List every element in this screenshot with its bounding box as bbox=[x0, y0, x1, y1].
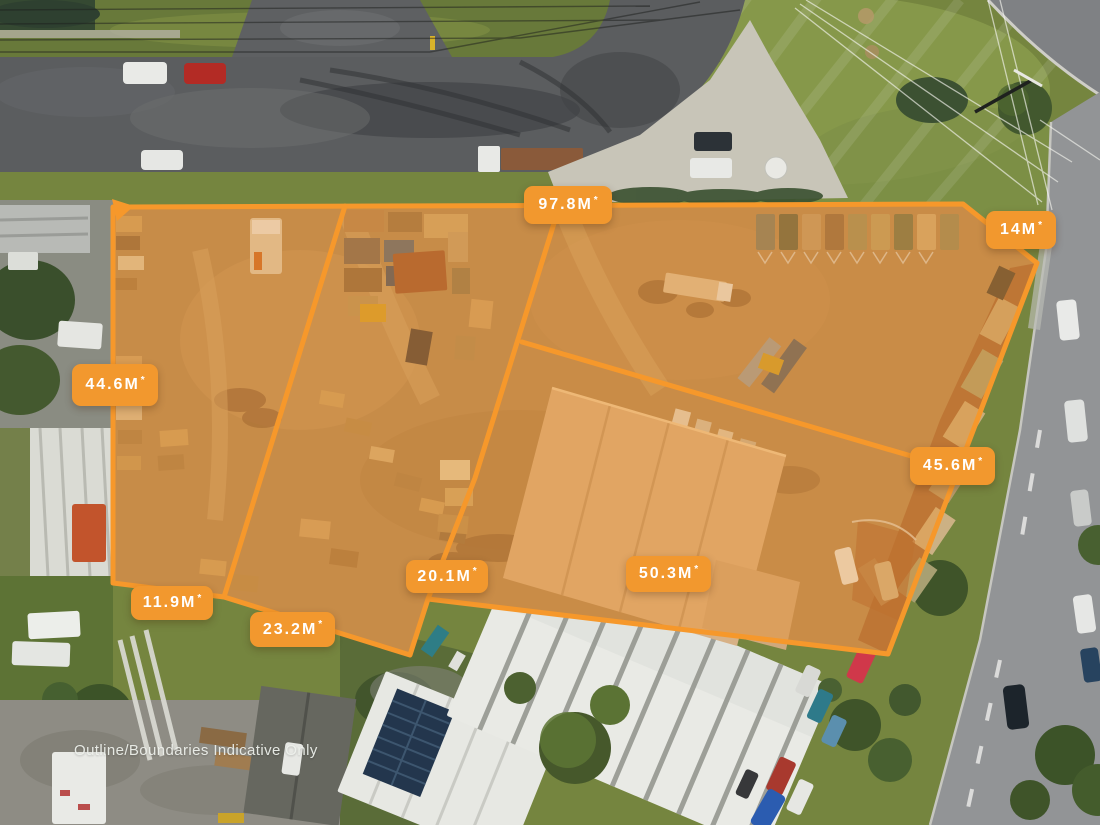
parcel-overlays bbox=[113, 204, 1037, 655]
measurement-label-14m: 14M* bbox=[986, 211, 1056, 249]
measurement-label-11-9m: 11.9M* bbox=[131, 586, 213, 620]
disclaimer-text: Outline/Boundaries Indicative Only bbox=[74, 742, 318, 759]
footpath bbox=[0, 30, 180, 38]
measurement-label-23-2m: 23.2M* bbox=[250, 612, 335, 647]
measurement-label-44-6m: 44.6M* bbox=[72, 364, 158, 406]
measurement-label-50-3m: 50.3M* bbox=[626, 556, 711, 592]
measurement-label-45-6m: 45.6M* bbox=[910, 447, 995, 485]
measurement-label-20-1m: 20.1M* bbox=[406, 560, 488, 593]
measurement-label-97-8m: 97.8M* bbox=[524, 186, 612, 224]
aerial-property-photo: 97.8M* 14M* 44.6M* 45.6M* 20.1M* 50.3M* … bbox=[0, 0, 1100, 825]
aerial-scene bbox=[0, 0, 1100, 825]
